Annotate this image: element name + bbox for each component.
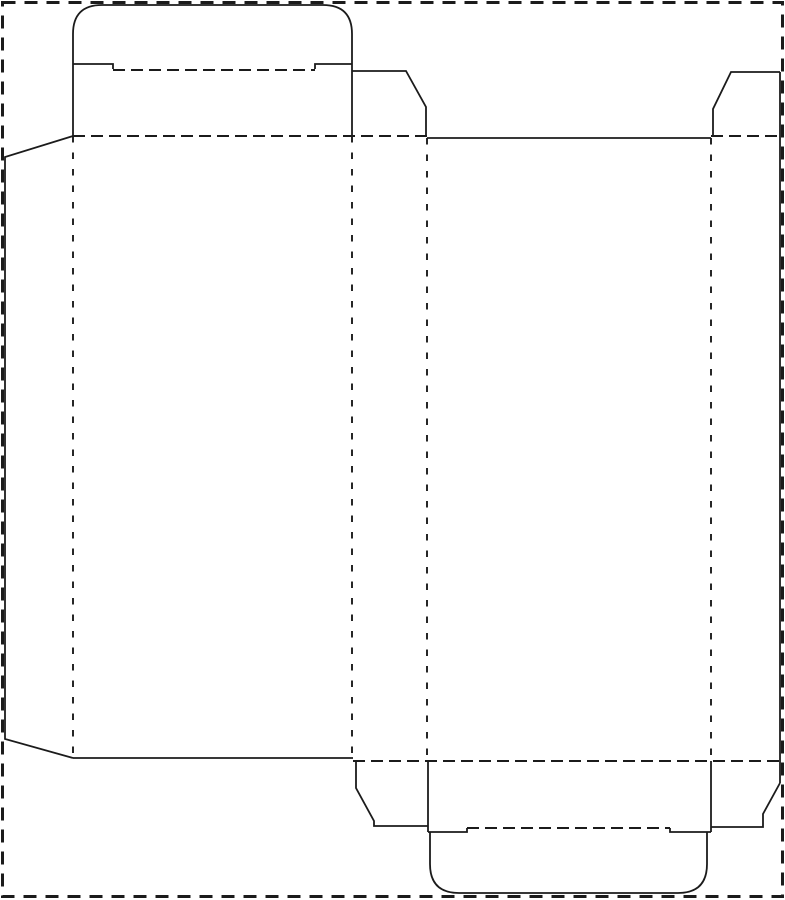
top-lid-left-shoulder-cut (73, 64, 113, 69)
dieline-sheet (0, 0, 785, 900)
box-dieline-drawing (0, 0, 785, 900)
bottom-tuck-flap-cut (430, 832, 707, 893)
top-left-dust-flap-cut (352, 71, 426, 136)
bottom-lid-left-shoulder-cut (428, 828, 467, 832)
bottom-left-dust-flap-cut (356, 761, 428, 826)
top-right-dust-flap-cut (713, 72, 780, 136)
top-tuck-flap-cut (73, 5, 352, 64)
top-lid-right-shoulder-cut (315, 64, 352, 69)
glue-flap-cut (5, 136, 73, 758)
bottom-lid-right-shoulder-cut (670, 828, 711, 832)
bottom-right-dust-flap-cut (711, 783, 780, 827)
